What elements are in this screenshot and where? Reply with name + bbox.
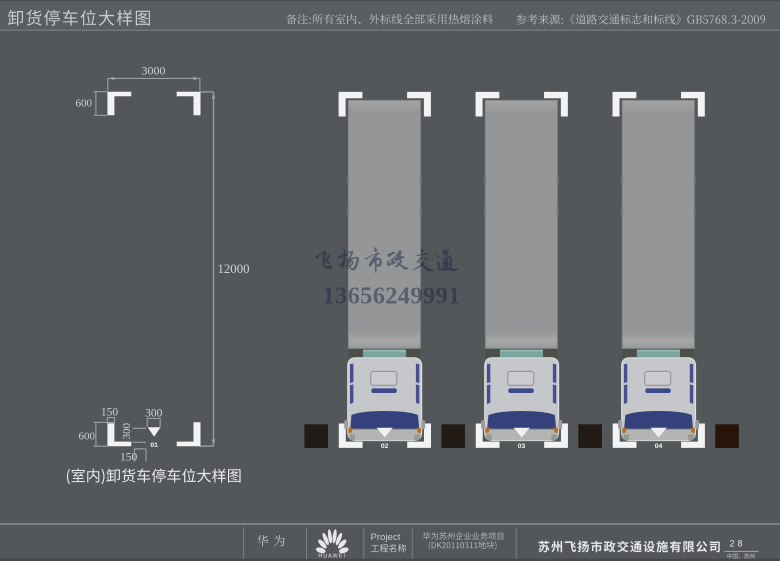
svg-text:03: 03 xyxy=(518,443,526,450)
svg-text:150: 150 xyxy=(101,407,119,419)
svg-text:600: 600 xyxy=(79,430,96,442)
svg-text:Project: Project xyxy=(371,532,401,543)
svg-text:04: 04 xyxy=(655,443,663,450)
svg-text:3000: 3000 xyxy=(142,64,166,78)
svg-text:13656249991: 13656249991 xyxy=(323,283,461,310)
svg-text:01: 01 xyxy=(150,442,158,449)
svg-text:600: 600 xyxy=(76,98,93,110)
svg-text:300: 300 xyxy=(121,422,133,439)
svg-text:28: 28 xyxy=(729,538,745,548)
svg-text:12000: 12000 xyxy=(218,262,250,276)
svg-text:300: 300 xyxy=(145,407,163,419)
svg-text:HUAWEI: HUAWEI xyxy=(318,554,346,560)
svg-text:02: 02 xyxy=(381,443,389,450)
